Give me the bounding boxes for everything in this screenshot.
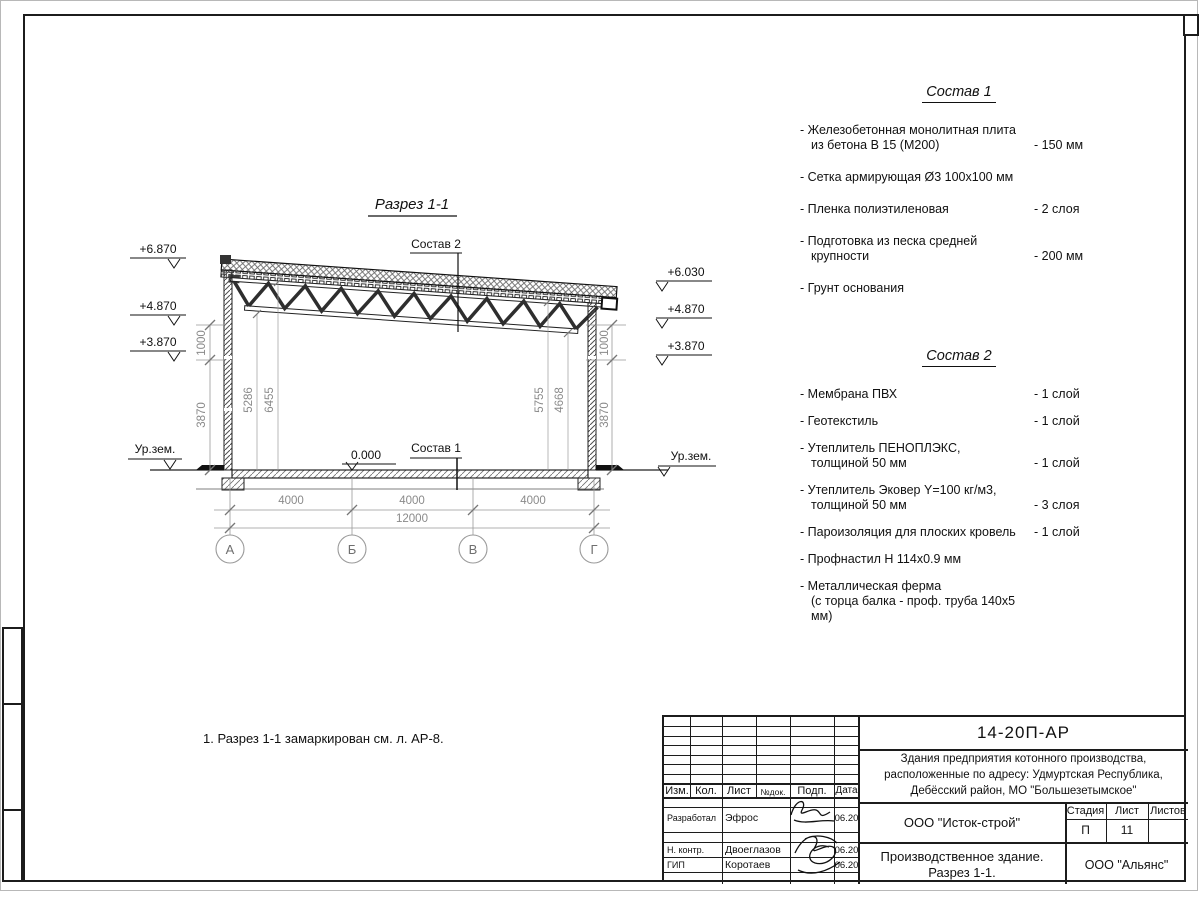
dim-12000: 12000 <box>396 513 428 525</box>
end-beam-tube <box>601 298 617 310</box>
tb-name-developer: Эфрос <box>725 812 789 824</box>
dim-4000-1: 4000 <box>278 495 304 507</box>
list-item: - Профнастил Н 114х0.9 мм <box>800 552 1118 567</box>
sostav2-list: Состав 2 - Мембрана ПВХ - 1 слой - Геоте… <box>800 348 1118 624</box>
tb-object-line2: Разрез 1-1. <box>859 865 1065 880</box>
ground-wedge-right <box>596 465 624 470</box>
list-item: - Пароизоляция для плоских кровель - 1 с… <box>800 525 1118 540</box>
dim-5286: 5286 <box>243 387 255 413</box>
drawing-sheet: Разрез 1-1 Состав <box>0 0 1200 900</box>
dim-6455: 6455 <box>264 387 276 413</box>
ground-label-right: Ур.зем. <box>671 449 712 463</box>
dim-right-3870: 3870 <box>599 402 611 428</box>
sostav2-title: Состав 2 <box>800 348 1118 364</box>
tb-name-ncontrol: Двоеглазов <box>725 844 789 856</box>
axis-label-b: Б <box>348 542 357 557</box>
elev-right-6030: +6.030 <box>667 265 704 279</box>
tb-role-gip: ГИП <box>667 860 722 870</box>
tb-header-kol: Кол. <box>690 785 722 797</box>
list-item: - Металлическая ферма(с торца балка - пр… <box>800 579 1118 624</box>
tb-stadia-value: П <box>1065 823 1106 837</box>
list-item: - Сетка армирующая Ø3 100х100 мм <box>800 170 1118 185</box>
roof-assembly <box>219 259 618 336</box>
list-item: - Утеплитель Эковер Y=100 кг/м3,толщиной… <box>800 483 1118 513</box>
list-item: - Грунт основания <box>800 281 1118 296</box>
tb-header-list: Лист <box>722 785 756 797</box>
tb-header-podp: Подп. <box>790 785 834 797</box>
ground-label-left: Ур.зем. <box>135 442 176 456</box>
list-item: - Геотекстиль - 1 слой <box>800 414 1118 429</box>
tb-name-gip: Коротаев <box>725 859 789 871</box>
tb-role-developer: Разработал <box>667 813 722 823</box>
tb-header-izm: Изм. <box>664 785 690 797</box>
zero-level-label: 0.000 <box>351 448 381 462</box>
tb-stadia-header: Стадия <box>1065 805 1106 817</box>
tb-date-gip: 06.20 <box>834 860 859 871</box>
tb-org: ООО "Исток-строй" <box>859 815 1065 830</box>
interior-height-dims: 5286 6455 5755 4668 <box>243 278 572 470</box>
tb-date-ncontrol: 06.20 <box>834 845 859 856</box>
left-wall-joint-2 <box>224 408 232 411</box>
axis-label-v: В <box>469 542 478 557</box>
elev-left-4870: +4.870 <box>139 299 176 313</box>
list-item: - Железобетонная монолитная плитаиз бето… <box>800 123 1118 153</box>
tb-project-line2: расположенные по адресу: Удмуртская Респ… <box>861 769 1186 781</box>
tb-sheet-value: 11 <box>1106 823 1148 837</box>
elev-right-3870: +3.870 <box>667 339 704 353</box>
tb-header-ndoc: №док. <box>756 787 790 797</box>
horizontal-dims: 4000 4000 4000 12000 <box>214 478 610 535</box>
dim-left-3870: 3870 <box>196 402 208 428</box>
tb-role-ncontrol: Н. контр. <box>667 845 722 855</box>
zero-level-mark: 0.000 <box>342 448 396 470</box>
elevation-marks-left: +6.870 +4.870 +3.870 Ур.зем. <box>128 242 186 469</box>
vertical-dims-left: 1000 3870 <box>196 320 226 475</box>
tb-contractor: ООО "Альянс" <box>1065 858 1188 872</box>
dim-4000-3: 4000 <box>520 495 546 507</box>
tb-date-developer: 06.20 <box>834 813 859 824</box>
dim-left-1000: 1000 <box>196 330 208 356</box>
axis-label-g: Г <box>590 542 597 557</box>
sostav1-title: Состав 1 <box>800 84 1118 100</box>
dim-right-1000: 1000 <box>599 330 611 356</box>
title-block: Изм. Кол. Лист №док. Подп. Дата Разработ… <box>662 715 1186 882</box>
left-parapet-cap <box>220 255 231 264</box>
elev-right-4870: +4.870 <box>667 302 704 316</box>
axis-label-a: А <box>226 542 235 557</box>
sostav1-list: Состав 1 - Железобетонная монолитная пли… <box>800 84 1118 296</box>
sostav2-ref-label: Состав 2 <box>411 237 461 251</box>
sostav1-ref-label: Состав 1 <box>411 441 461 455</box>
elev-left-6870: +6.870 <box>139 242 176 256</box>
list-item: - Утеплитель ПЕНОПЛЭКС,толщиной 50 мм - … <box>800 441 1118 471</box>
grid-axes: А Б В Г <box>216 535 608 563</box>
list-item: - Мембрана ПВХ - 1 слой <box>800 387 1118 402</box>
sheet-note: 1. Разрез 1-1 замаркирован см. л. АР-8. <box>203 731 444 746</box>
floor-slab <box>232 470 588 478</box>
left-foundation <box>222 478 244 490</box>
elevation-marks-right: +6.030 +4.870 +3.870 Ур.зем. <box>656 265 716 476</box>
list-item: - Подготовка из песка среднейкрупности -… <box>800 234 1118 264</box>
right-foundation <box>578 478 600 490</box>
elev-left-3870: +3.870 <box>139 335 176 349</box>
dim-4000-2: 4000 <box>399 495 425 507</box>
tb-header-data: Дата <box>834 785 859 796</box>
left-wall-joint-1 <box>224 356 232 359</box>
dim-5755: 5755 <box>534 387 546 413</box>
left-wall <box>224 270 232 470</box>
tb-sheet-header: Лист <box>1106 805 1148 817</box>
sostav1-reference: Состав 1 <box>410 441 462 490</box>
right-wall-joint <box>588 356 596 359</box>
tb-doc-number: 14-20П-АР <box>859 723 1188 743</box>
dim-4668: 4668 <box>554 387 566 413</box>
list-item: - Пленка полиэтиленовая - 2 слоя <box>800 202 1118 217</box>
tb-sheets-header: Листов <box>1148 805 1188 817</box>
tb-project-line1: Здания предприятия котонного производств… <box>861 753 1186 765</box>
section-title: Разрез 1-1 <box>375 196 449 213</box>
zero-level-arrow <box>346 462 358 470</box>
tb-object-line1: Производственное здание. <box>859 849 1065 864</box>
truss-left-end-post <box>233 282 251 306</box>
tb-project-line3: Дебёсский район, МО "Большезетымское" <box>861 785 1186 797</box>
right-wall <box>588 303 596 470</box>
